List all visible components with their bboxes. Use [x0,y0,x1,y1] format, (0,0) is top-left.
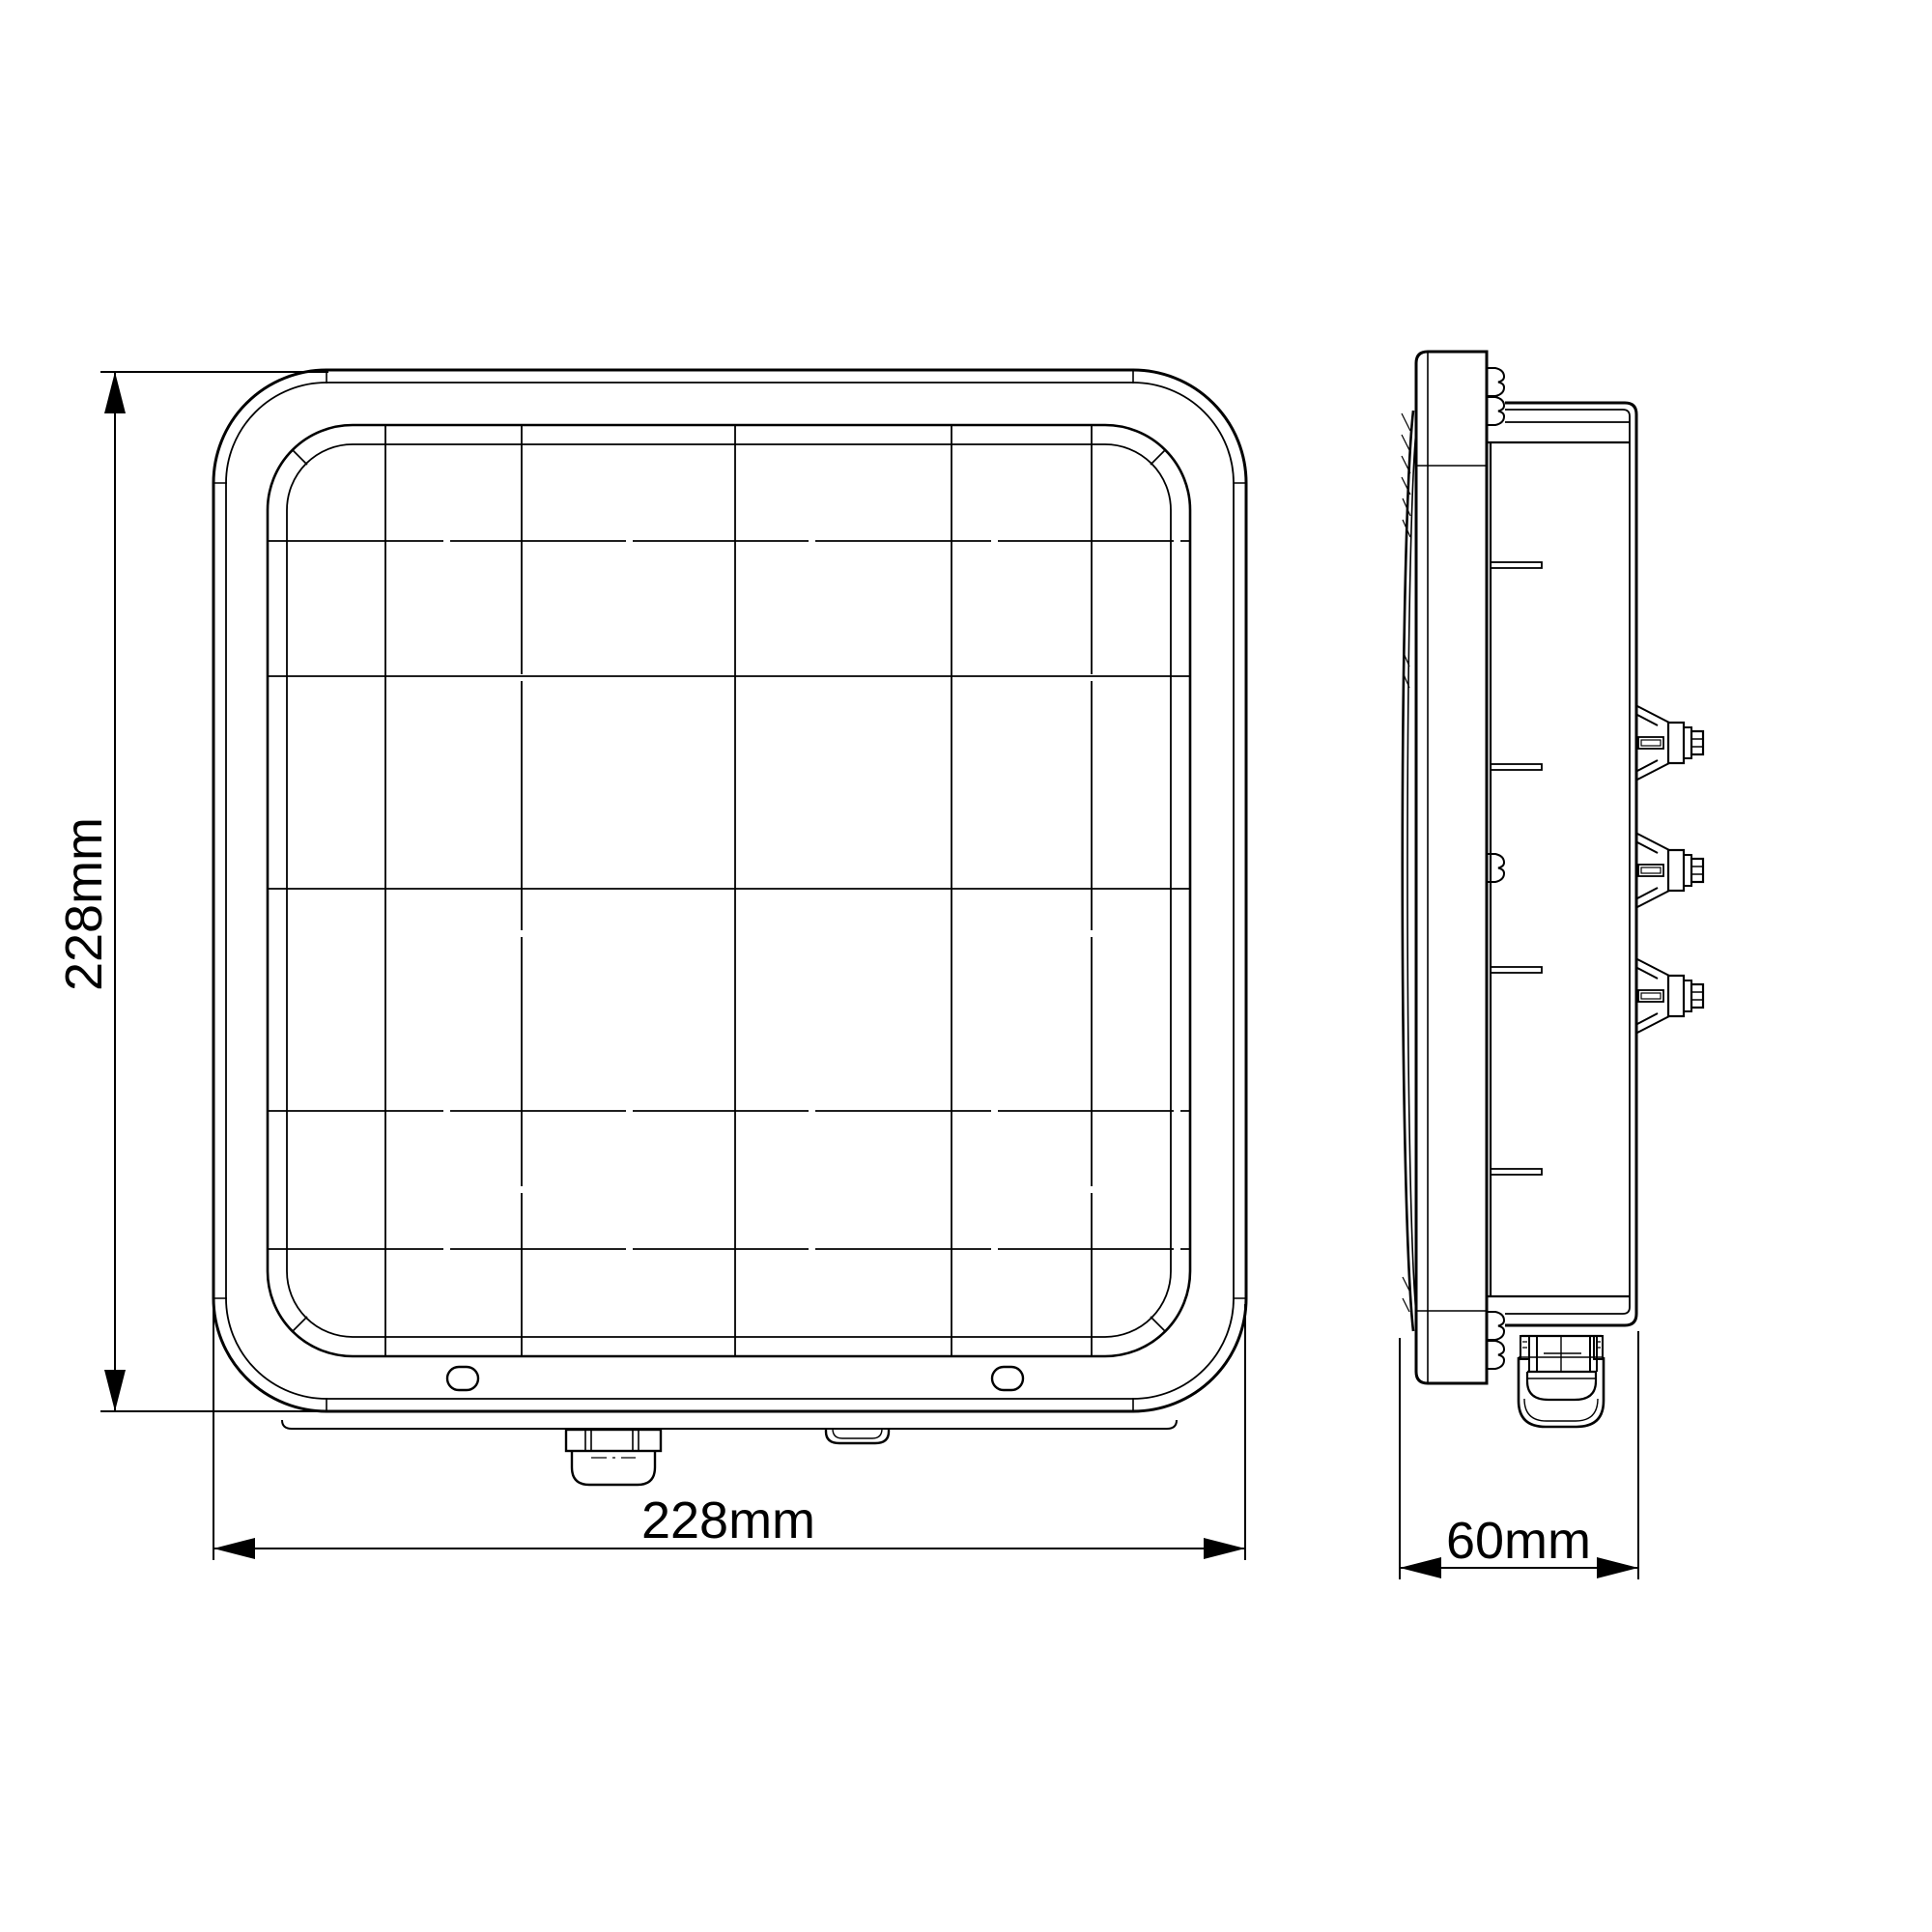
arrowhead-right [1204,1538,1245,1559]
connector-inner-dome [1527,1372,1596,1400]
lens-grid-horizontal-lines-dashed [268,541,1190,1249]
clip [1487,368,1504,396]
boss-slot-inner [1641,740,1661,746]
lens-frame-outer [268,425,1190,1356]
screw-washer [1684,980,1691,1011]
boss-slot [1638,737,1663,749]
rear-housing-bottom-edge [282,1420,1177,1429]
cable-gland-dome [572,1451,655,1485]
screw-washer [1684,855,1691,886]
screw-hex-facets [1691,739,1703,747]
mounting-boss [1637,834,1703,907]
rear-housing [1487,403,1636,1325]
arrowhead-up [104,372,126,413]
boss-cylinder [1668,976,1684,1016]
lens-grid [268,425,1190,1356]
screw-hex-facets [1691,992,1703,1000]
lens-corner-chamfers [293,450,1165,1331]
mounting-bosses [1637,706,1703,1033]
screw-hex-head [1691,984,1703,1008]
clip [1487,397,1504,425]
front-outer-frame-inner-line [226,383,1234,1399]
gland-plug [826,1429,889,1443]
mounting-boss [1637,706,1703,780]
housing-inner-profile [1505,410,1630,1314]
clip [1487,1312,1504,1340]
arrowhead-right [1597,1557,1638,1578]
retaining-clips [1487,368,1504,1369]
screw-hex-head [1691,859,1703,882]
dimension-label-depth: 60mm [1446,1512,1591,1570]
gland-plug-inner-line [833,1429,882,1438]
housing-outer-profile [1505,403,1636,1325]
internal-fin [1491,967,1542,973]
cable-gland-nut-facets [585,1430,639,1451]
mounting-boss [1637,959,1703,1033]
lens-grid-horizontal-lines [268,676,1190,889]
boss-slot [1638,865,1663,876]
internal-fin [1491,764,1542,770]
bezel-slot-left [447,1367,478,1390]
boss-gussets [1637,834,1669,907]
dimension-label-height: 228mm [55,817,113,991]
screw-washer [1684,727,1691,758]
clip [1487,1341,1504,1369]
lens-grid-vertical-line-dashed [522,425,1092,1356]
arrowhead-left [1400,1557,1441,1578]
connector-outer-cup-inner-line [1524,1399,1598,1421]
cable-gland-nut [566,1430,661,1451]
clip [1487,854,1504,882]
side-flange-tangent-lines [1416,466,1487,1311]
internal-fin [1491,562,1542,568]
drawing-canvas: 228mm 228mm 60mm [0,0,1932,1932]
connector-centerline-cross [1544,1336,1581,1372]
lens-frame-inner [287,444,1171,1337]
cable-gland [566,1430,661,1485]
boss-slot-inner [1641,993,1661,999]
dimension-width: 228mm [213,1304,1245,1560]
bezel-slot-right [992,1367,1023,1390]
boss-cylinder [1668,723,1684,763]
boss-cylinder [1668,850,1684,891]
screw-hex-facets [1691,867,1703,874]
bottom-connector [1519,1336,1604,1427]
arrowhead-down [104,1370,126,1411]
boss-gussets [1637,959,1669,1033]
front-view [213,370,1246,1485]
screw-hex-head [1691,731,1703,754]
boss-slot-inner [1641,867,1661,873]
side-flange-outline [1416,352,1487,1383]
internal-fin [1491,1169,1542,1175]
boss-gussets [1637,706,1669,780]
technical-drawing: 228mm 228mm 60mm [0,0,1932,1932]
arrowhead-left [213,1538,255,1559]
boss-slot [1638,990,1663,1002]
side-view [1402,352,1703,1427]
dimension-label-width: 228mm [641,1492,815,1549]
lens-grid-vertical-lines [385,425,952,1356]
